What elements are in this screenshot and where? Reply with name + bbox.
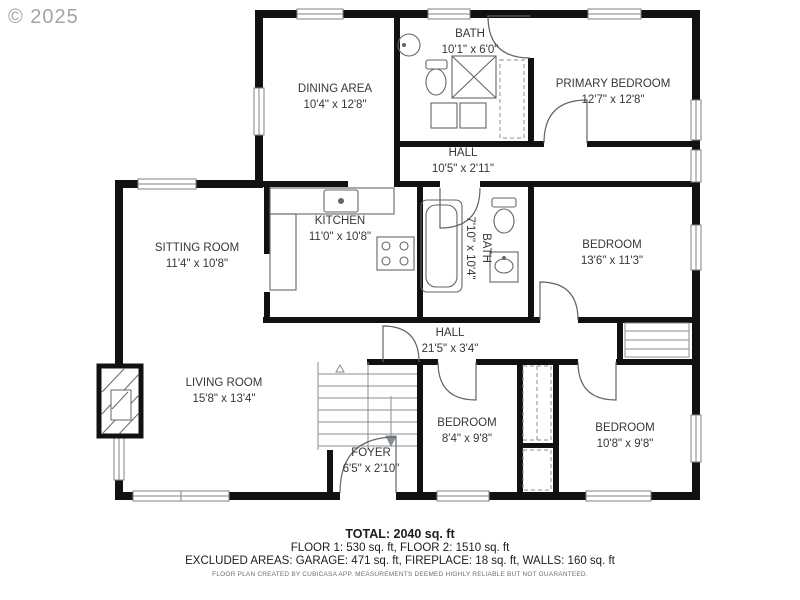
room-label-hall-lower: HALL 21'5" x 3'4" (422, 325, 479, 357)
total-area-text: TOTAL: 2040 sq. ft (0, 527, 800, 541)
door-arc (578, 362, 616, 400)
room-dims: 10'4" x 12'8" (298, 97, 372, 113)
room-label-dining: DINING AREA 10'4" x 12'8" (298, 81, 372, 113)
room-dims: 8'4" x 9'8" (437, 431, 496, 447)
window-icon (586, 491, 651, 501)
room-dims: 7'10" x 10'4" (462, 216, 478, 279)
window-icon (254, 88, 264, 135)
room-dims: 11'0" x 10'8" (309, 229, 371, 245)
room-name: PRIMARY BEDROOM (556, 76, 671, 92)
stairs (318, 362, 417, 450)
kitchen-sink-icon (324, 190, 358, 212)
room-label-bath-upper: BATH 10'1" x 6'0" (442, 26, 499, 58)
window-icon (297, 9, 343, 19)
area-summary: TOTAL: 2040 sq. ft FLOOR 1: 530 sq. ft, … (0, 527, 800, 578)
room-label-bedroom-se: BEDROOM 10'8" x 9'8" (595, 420, 654, 452)
room-name: FOYER (343, 445, 400, 461)
toilet-icon (492, 198, 516, 233)
room-dims: 10'8" x 9'8" (595, 436, 654, 452)
room-dims: 10'5" x 2'11" (432, 161, 494, 177)
floor-plan-drawing (0, 0, 800, 520)
floor-plan-page: © 2025 (0, 0, 800, 600)
room-name: BEDROOM (581, 237, 643, 253)
stairs-down-arrow-icon (386, 396, 396, 446)
window-icon (691, 100, 701, 140)
window-icon (428, 9, 470, 19)
excluded-areas-text: EXCLUDED AREAS: GARAGE: 471 sq. ft, FIRE… (0, 555, 800, 567)
room-label-kitchen: KITCHEN 11'0" x 10'8" (309, 213, 371, 245)
room-name: SITTING ROOM (155, 240, 239, 256)
kitchen-counter (270, 214, 296, 290)
toilet-icon (426, 60, 447, 95)
room-dims: 15'8" x 13'4" (186, 391, 263, 407)
window-icon (691, 150, 701, 182)
room-name: LIVING ROOM (186, 375, 263, 391)
shower-icon (452, 56, 496, 98)
floor-areas-text: FLOOR 1: 530 sq. ft, FLOOR 2: 1510 sq. f… (0, 542, 800, 554)
room-dims: 6'5" x 2'10" (343, 461, 400, 477)
room-name: BATH (442, 26, 499, 42)
window-icon (138, 179, 196, 189)
fireplace (99, 366, 141, 436)
window-icon (437, 491, 489, 501)
disclaimer-text: FLOOR PLAN CREATED BY CUBICASA APP. MEAS… (0, 571, 800, 578)
bathtub-icon (421, 200, 462, 292)
window-icon (114, 437, 124, 480)
door-arc (540, 282, 578, 320)
bedroom-closet (523, 366, 551, 440)
room-name: BEDROOM (595, 420, 654, 436)
room-label-hall-upper: HALL 10'5" x 2'11" (432, 145, 494, 177)
room-label-sitting-room: SITTING ROOM 11'4" x 10'8" (155, 240, 239, 272)
linen-closet (500, 60, 524, 138)
window-icon (691, 225, 701, 270)
window-icon (588, 9, 641, 19)
room-name: BEDROOM (437, 415, 496, 431)
room-label-primary-bedroom: PRIMARY BEDROOM 12'7" x 12'8" (556, 76, 671, 108)
sink-icon (490, 252, 518, 282)
room-dims: 11'4" x 10'8" (155, 256, 239, 272)
vanity-cabinet (431, 103, 457, 128)
room-name: DINING AREA (298, 81, 372, 97)
kitchen-counter (270, 188, 394, 214)
room-label-foyer: FOYER 6'5" x 2'10" (343, 445, 400, 477)
room-dims: 10'1" x 6'0" (442, 42, 499, 58)
room-dims: 12'7" x 12'8" (556, 92, 671, 108)
room-name: KITCHEN (309, 213, 371, 229)
room-label-bedroom-ne: BEDROOM 13'6" x 11'3" (581, 237, 643, 269)
room-label-bedroom-s: BEDROOM 8'4" x 9'8" (437, 415, 496, 447)
vanity-cabinet (460, 103, 486, 128)
room-label-bath-main: BATH 7'10" x 10'4" (462, 216, 494, 279)
door-arc (438, 362, 476, 400)
room-name: HALL (422, 325, 479, 341)
stairs-up-marker-icon (336, 365, 344, 372)
room-name: BATH (478, 216, 494, 279)
room-label-living-room: LIVING ROOM 15'8" x 13'4" (186, 375, 263, 407)
hall-closet (625, 323, 689, 357)
sink-icon (398, 34, 420, 56)
stove-icon (377, 237, 414, 270)
room-name: HALL (432, 145, 494, 161)
window-icon (133, 491, 229, 501)
door-arc (383, 326, 419, 362)
bedroom-closet (523, 450, 551, 490)
window-icon (691, 415, 701, 462)
room-dims: 21'5" x 3'4" (422, 341, 479, 357)
room-dims: 13'6" x 11'3" (581, 253, 643, 269)
